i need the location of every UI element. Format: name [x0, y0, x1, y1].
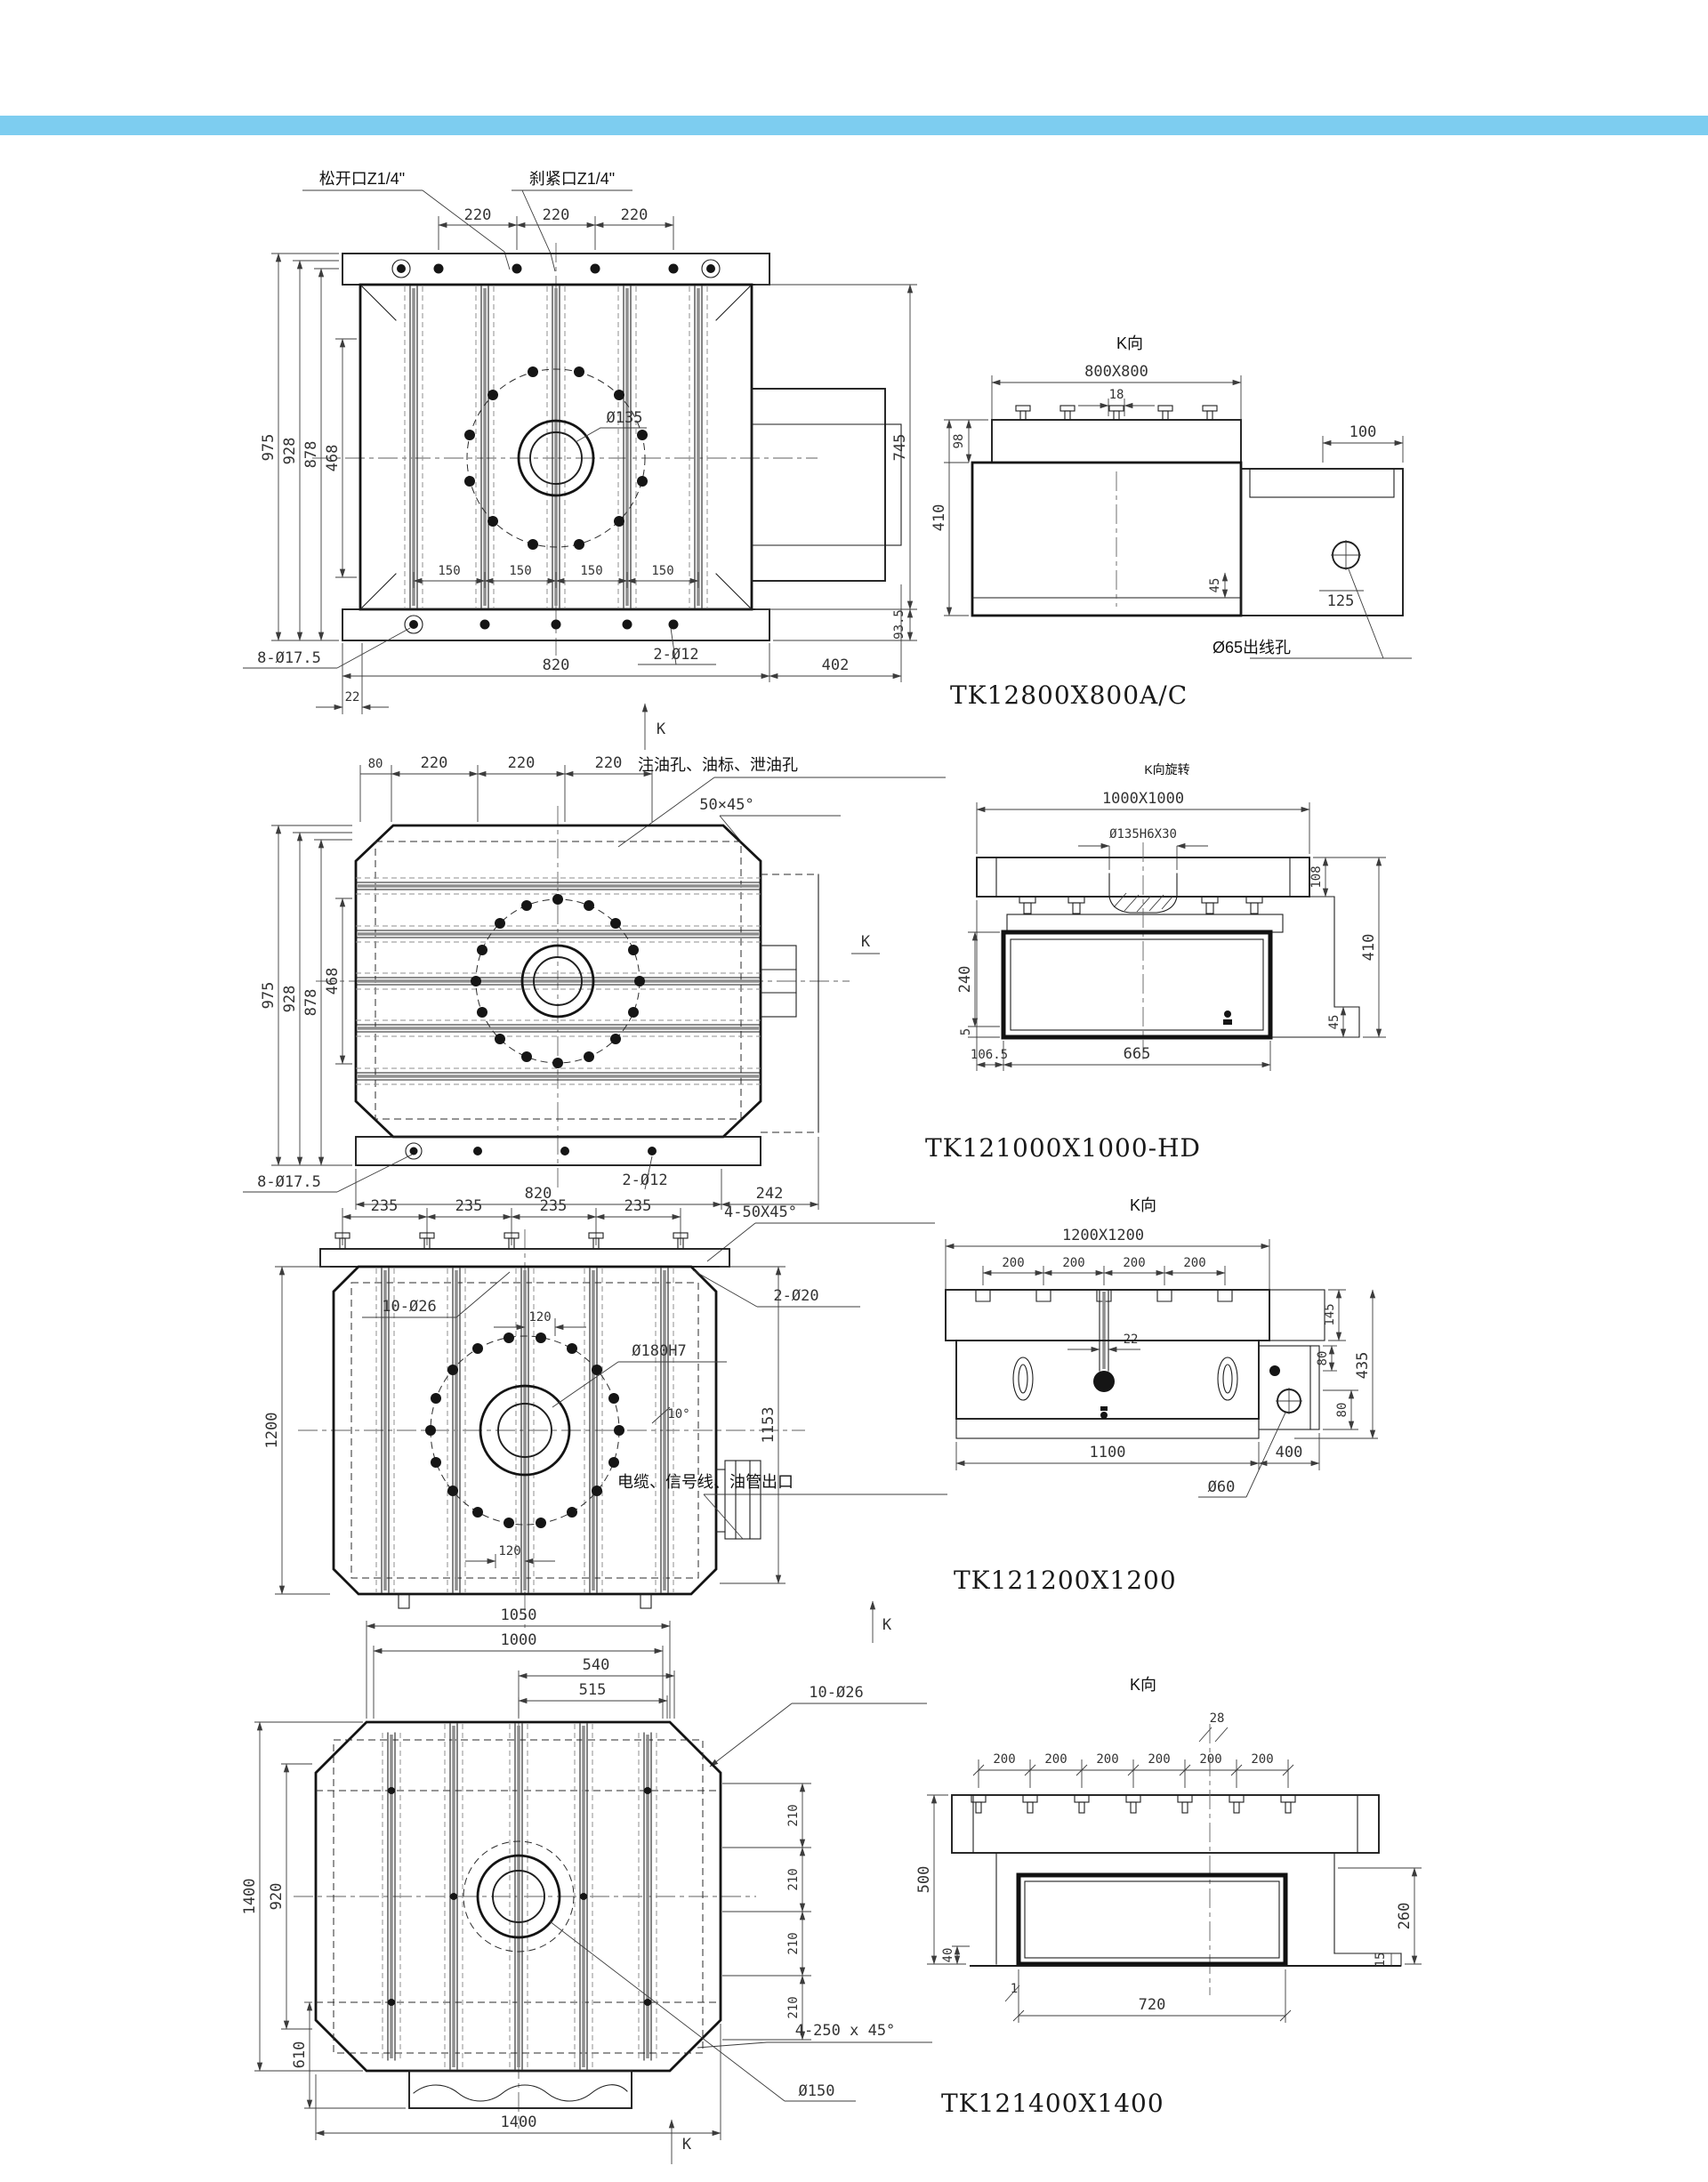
- wire-hole-label: Ø65出线孔: [1213, 639, 1291, 656]
- base-section: [970, 1853, 1401, 1966]
- dim-150-3: 150: [580, 564, 602, 578]
- dim-45: 45: [1208, 578, 1222, 593]
- dim-40: 40: [941, 1948, 955, 1963]
- k-view-title: K向旋转: [1144, 762, 1189, 777]
- centerlines: [316, 806, 850, 1190]
- dim-468: 468: [324, 968, 342, 995]
- dim-928: 928: [281, 986, 299, 1013]
- dim-200-1: 200: [1002, 1256, 1024, 1270]
- dim-1100: 1100: [1090, 1444, 1126, 1461]
- k-arrow-label: K: [682, 2136, 692, 2154]
- center-bore-label: Ø150: [799, 2082, 835, 2100]
- dim-402: 402: [822, 656, 850, 674]
- left-dimension-column: 975 928 878 468: [260, 825, 352, 1165]
- dim-975: 975: [260, 434, 278, 462]
- angle-label: 10°: [667, 1407, 689, 1421]
- dim-200-3: 200: [1096, 1752, 1118, 1767]
- top-dimension-row: 28 200 200 200 200 200 200: [973, 1711, 1293, 1788]
- model-label-1400x1400: TK121400X1400: [941, 2089, 1164, 2118]
- note-8-holes: 8-Ø17.5: [257, 649, 321, 667]
- drawing-800x800-k-view: K向 800X800 18 98 410 45 100: [939, 331, 1454, 722]
- dim-1153: 1153: [760, 1407, 777, 1444]
- bottom-dimension: 120: [465, 1544, 555, 1568]
- dim-720: 720: [1139, 1996, 1166, 2014]
- model-label-1000x1000: TK121000X1000-HD: [925, 1133, 1201, 1163]
- t-slot-rows: [356, 878, 761, 1084]
- dim-1400-left: 1400: [241, 1879, 259, 1915]
- k-arrow-label: K: [657, 721, 666, 738]
- dim-80: 80: [368, 757, 383, 771]
- chamfer-note-label: 4-50X45°: [724, 1204, 797, 1221]
- dim-1050: 1050: [501, 1606, 537, 1624]
- dim-210-3: 210: [786, 1932, 801, 1954]
- base-plate: [409, 2071, 632, 2108]
- k-view-dims: 145 435 80 80 1100 400 Ø60: [956, 1290, 1378, 1497]
- cable-note-label: 电缆、信号线、油管出口: [617, 1473, 794, 1491]
- note-8-holes: 8-Ø17.5: [257, 1173, 321, 1191]
- dim-150-4: 150: [651, 564, 673, 578]
- dim-235-3: 235: [540, 1197, 568, 1215]
- dim-435: 435: [1354, 1352, 1372, 1380]
- model-label-1200x1200: TK121200X1200: [954, 1566, 1177, 1595]
- loosen-port-label: 松开口Z1/4": [319, 170, 405, 188]
- drawing-1000x1000-front-view: 80 220 220 220 注油孔、油标、泄油孔 50×45°: [227, 745, 947, 1217]
- dim-98: 98: [952, 434, 966, 449]
- dim-1000x1000: 1000X1000: [1102, 790, 1184, 808]
- dim-220-2: 220: [508, 754, 536, 772]
- dim-145: 145: [1323, 1303, 1337, 1325]
- k-view-title: K向: [1130, 1196, 1156, 1214]
- dim-150-2: 150: [509, 564, 531, 578]
- chamfer-note-label: 4-250 x 45°: [795, 2022, 896, 2040]
- center-bore-label: Ø135: [607, 409, 643, 427]
- dim-220-3: 220: [621, 206, 649, 224]
- dim-745: 745: [891, 434, 909, 462]
- page-accent-bar: [0, 116, 1708, 135]
- center-bore-label: Ø180H7: [632, 1342, 686, 1360]
- dim-468: 468: [324, 445, 342, 472]
- dim-920: 920: [268, 1883, 286, 1911]
- dim-200-3: 200: [1123, 1256, 1145, 1270]
- clamp-port-label: 刹紧口Z1/4": [529, 170, 615, 188]
- dim-210-2: 210: [786, 1868, 801, 1890]
- drawing-1400x1400-front-view: 1050 1000 540 515 10-Ø26: [222, 1608, 943, 2164]
- note-10-holes: 10-Ø26: [809, 1684, 863, 1702]
- dim-1200: 1200: [263, 1413, 281, 1449]
- dim-210-4: 210: [786, 1996, 801, 2018]
- dim-878: 878: [302, 441, 320, 469]
- hole-callout: 10-Ø26: [710, 1684, 927, 1767]
- dim-18: 18: [1109, 388, 1124, 402]
- dim-45: 45: [1327, 1015, 1341, 1030]
- dim-120-bottom: 120: [498, 1544, 520, 1558]
- drawing-1000x1000-k-view: K向旋转 1000X1000 Ø135H6X30 108 410: [934, 758, 1441, 1140]
- chamfer-callout: 4-50X45°: [707, 1204, 935, 1261]
- left-dimension-column: 1400 920 610: [241, 1722, 406, 2108]
- dim-400: 400: [1276, 1444, 1303, 1461]
- t-slots: [405, 286, 707, 608]
- dim-410: 410: [1360, 934, 1378, 962]
- body-section: [956, 1341, 1319, 1438]
- dim-200-5: 200: [1199, 1752, 1221, 1767]
- drawing-1400x1400-k-view: K向 28 200 200 200 200 200 200: [916, 1671, 1450, 2097]
- dim-665: 665: [1124, 1045, 1151, 1063]
- dim-515: 515: [579, 1681, 607, 1699]
- dim-240: 240: [956, 966, 974, 994]
- k-direction-arrow: K: [645, 704, 666, 750]
- dim-28: 28: [1210, 1711, 1225, 1726]
- dim-200-1: 200: [993, 1752, 1015, 1767]
- dim-93-5: 93.5: [892, 609, 906, 640]
- note-2-holes: 2-Ø20: [773, 1287, 818, 1305]
- chamfer-callout: 50×45°: [699, 796, 841, 841]
- centerlines: [294, 1697, 756, 2129]
- right-projection: K: [761, 874, 880, 1132]
- dim-975: 975: [260, 982, 278, 1010]
- dim-200-4: 200: [1148, 1752, 1170, 1767]
- note-10-holes: 10-Ø26: [382, 1298, 436, 1316]
- table-section: [972, 406, 1241, 616]
- wire-hole-label: Ø60: [1208, 1478, 1236, 1496]
- drawing-1200x1200-k-view: K向 1200X1200 200 200 200 200 22: [921, 1196, 1463, 1597]
- top-dimension-rows: 1050 1000 540 515: [367, 1606, 674, 1719]
- dim-260: 260: [1396, 1903, 1414, 1930]
- k-direction-arrow: K: [672, 2120, 692, 2164]
- dim-820: 820: [543, 656, 570, 674]
- bottom-dimension-row: 820 402 22 8-Ø17.5 2-Ø12: [243, 584, 901, 714]
- oil-hole-callout: 注油孔、油标、泄油孔: [618, 756, 946, 847]
- callout-clamp-port: 刹紧口Z1/4": [512, 170, 632, 271]
- bottom-flange: [356, 1137, 761, 1165]
- dim-108: 108: [1309, 866, 1324, 888]
- dim-800x800: 800X800: [1084, 363, 1148, 381]
- oil-note-label: 注油孔、油标、泄油孔: [638, 756, 798, 774]
- cable-outlet-callout: 电缆、信号线、油管出口: [617, 1461, 947, 1539]
- left-dimension-column: 975 928 878 468: [260, 254, 357, 640]
- dim-80-upper: 80: [1316, 1351, 1330, 1366]
- dim-125: 125: [1327, 592, 1355, 610]
- dim-100: 100: [1349, 423, 1377, 441]
- dim-200-2: 200: [1044, 1752, 1067, 1767]
- dim-410: 410: [931, 504, 948, 532]
- dim-22: 22: [345, 690, 360, 705]
- model-label-800x800: TK12800X800A/C: [950, 680, 1188, 710]
- base-section: [1003, 897, 1359, 1037]
- dim-610: 610: [291, 2041, 309, 2069]
- note-2-holes: 2-Ø12: [622, 1172, 667, 1189]
- dim-106-5: 106.5: [971, 1048, 1008, 1062]
- size-dim: 1200X1200 200 200 200 200: [946, 1227, 1269, 1290]
- dim-878: 878: [302, 989, 320, 1017]
- k-view-dims: 98 410 45 100 125: [931, 420, 1403, 616]
- wire-hole-callout: Ø65出线孔: [1213, 569, 1412, 658]
- dim-210-1: 210: [786, 1804, 801, 1826]
- dim-22: 22: [1124, 1333, 1139, 1347]
- dim-120-top: 120: [528, 1310, 551, 1324]
- table-plate-section: [977, 842, 1309, 1060]
- drawing-800x800-front-view: 松开口Z1/4" 刹紧口Z1/4" 220 220 220: [227, 165, 930, 756]
- dim-150-1: 150: [438, 564, 460, 578]
- table-plate-section: 22: [946, 1290, 1325, 1371]
- k-view-title: K向: [1116, 334, 1143, 352]
- dim-540: 540: [583, 1656, 610, 1674]
- k-view-title: K向: [1130, 1676, 1156, 1694]
- dim-200-2: 200: [1062, 1256, 1084, 1270]
- dim-220-1: 220: [464, 206, 492, 224]
- junction-box: [1241, 469, 1403, 616]
- dim-235-4: 235: [624, 1197, 652, 1215]
- dim-200-6: 200: [1251, 1752, 1273, 1767]
- dim-500: 500: [915, 1866, 933, 1894]
- top-dimension-row: 80 220 220 220: [360, 754, 652, 822]
- dim-200-4: 200: [1183, 1256, 1205, 1270]
- dim-235-2: 235: [455, 1197, 483, 1215]
- dim-15: 15: [1374, 1953, 1388, 1968]
- note-2-holes: 2-Ø12: [653, 646, 698, 664]
- spigot-note: Ø135H6X30: [1109, 827, 1177, 841]
- right-dimension-column: 745 93.5: [755, 285, 917, 640]
- dim-5: 5: [959, 1028, 973, 1035]
- dim-80-lower: 80: [1335, 1403, 1349, 1418]
- dim-928: 928: [281, 438, 299, 465]
- right-dimension-column: 210 210 210 210: [722, 1783, 811, 2040]
- chamfer-note-label: 50×45°: [699, 796, 753, 814]
- dim-1200x1200: 1200X1200: [1062, 1227, 1144, 1244]
- dim-235-1: 235: [371, 1197, 399, 1215]
- dim-1400-bottom: 1400: [501, 2114, 537, 2131]
- motor-housing: [752, 389, 901, 581]
- dim-220-2: 220: [543, 206, 570, 224]
- k-view-dims: 500 40 260 15 1 720: [915, 1795, 1422, 2023]
- dim-220-3: 220: [595, 754, 623, 772]
- dim-220-1: 220: [421, 754, 448, 772]
- chamfer-callout: 4-250 x 45°: [697, 2022, 932, 2048]
- k-direction-label: K: [861, 933, 871, 951]
- dim-1000: 1000: [501, 1631, 537, 1649]
- drawing-1200x1200-front-view: 235 235 235 235 4-50X45°: [227, 1194, 947, 1643]
